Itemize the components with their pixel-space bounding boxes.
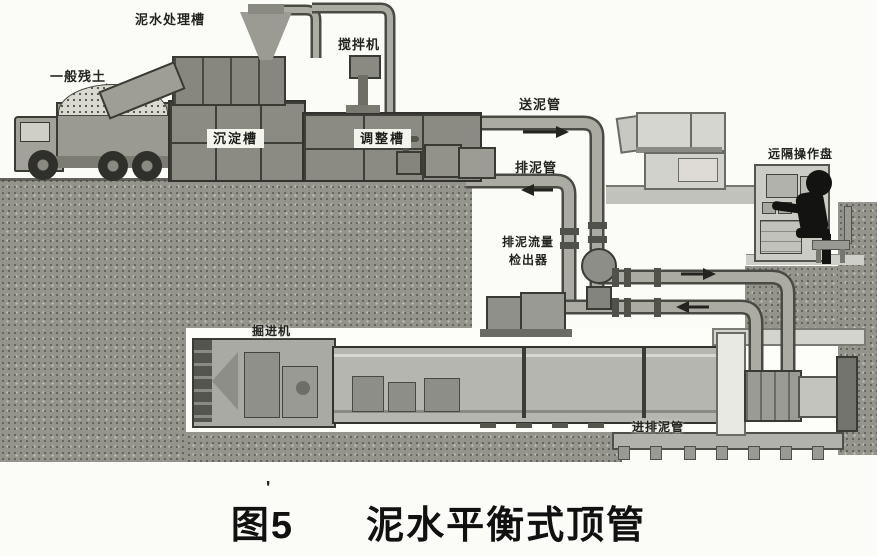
- feed-flow-arrow: [523, 126, 569, 138]
- label-pit-pipes: 进排泥管: [632, 421, 684, 433]
- discharge-flow-arrow: [521, 184, 553, 196]
- support-foot: [650, 446, 662, 460]
- earth-under-tunnel: [186, 428, 622, 462]
- label-slurry-treatment-tank: 泥水处理槽: [135, 13, 205, 26]
- support-foot: [684, 446, 696, 460]
- cyclone-funnel: [240, 12, 292, 60]
- pipe-flange: [612, 268, 619, 287]
- container-door: [678, 158, 718, 182]
- pipe-flange: [612, 298, 619, 317]
- label-flow-detector: 排泥流量: [502, 236, 554, 248]
- label-flow-detector: 检出器: [509, 254, 548, 266]
- switch-panel: [760, 220, 802, 254]
- support-foot: [748, 446, 760, 460]
- monitor-screen: [766, 174, 798, 198]
- chair-leg: [816, 249, 821, 263]
- truck-rear-wheel: [132, 151, 162, 181]
- pipe-joint: [522, 348, 526, 418]
- earth-surface-block: [0, 178, 472, 335]
- chair-back: [844, 206, 852, 244]
- sleeper: [480, 423, 496, 428]
- main-jack-unit: [744, 370, 802, 422]
- label-sedimentation-tank: 沉淀槽: [207, 129, 264, 148]
- trailing-gear-box: [424, 378, 460, 412]
- trailing-gear-box: [352, 376, 384, 412]
- pipe-flange: [560, 228, 579, 235]
- slurry-treatment-unit: [172, 56, 286, 106]
- gate-valve: [396, 151, 422, 175]
- figure-canvas: 一般残土 泥水处理槽 搅拌机 沉淀槽 调整槽 送泥管 排泥管 排泥流量 检出器 …: [0, 0, 877, 556]
- tbm-equipment-box: [244, 352, 280, 418]
- mixer-mount: [346, 105, 380, 113]
- feed-pump: [458, 147, 496, 179]
- pipe-flange: [588, 222, 607, 229]
- figure-caption: 图5泥水平衡式顶管: [0, 494, 877, 549]
- truck-rear-wheel: [98, 151, 128, 181]
- entrance-wall: [716, 332, 746, 436]
- bypass-valve: [586, 286, 612, 310]
- sleeper: [552, 423, 568, 428]
- support-foot: [618, 446, 630, 460]
- pipe-joint: [642, 348, 646, 418]
- tbm-motor-disc: [296, 381, 310, 395]
- sleeper: [588, 423, 604, 428]
- truck-window: [20, 122, 50, 142]
- pipe-flange: [654, 298, 661, 317]
- pipe-flange: [624, 298, 631, 317]
- pipe-flange: [560, 242, 579, 249]
- label-discharge-pipe: 排泥管: [515, 161, 557, 174]
- pit-pump: [520, 292, 566, 334]
- support-foot: [716, 446, 728, 460]
- label-machine: 掘进机: [252, 325, 291, 337]
- pipe-flange: [624, 268, 631, 287]
- pipe-flange: [588, 236, 607, 243]
- tbm-cutter-head: [194, 340, 212, 422]
- label-mixer: 搅拌机: [338, 38, 380, 51]
- pit-pump-motor: [486, 296, 524, 332]
- site-container: [636, 112, 726, 152]
- chair-leg: [840, 249, 845, 263]
- pit-pump-base: [480, 329, 572, 337]
- label-adjustment-tank: 调整槽: [354, 129, 411, 148]
- caption-title: 泥水平衡式顶管: [366, 505, 646, 547]
- earth-left-column: [0, 330, 188, 462]
- sleeper: [516, 423, 532, 428]
- thrust-collar: [836, 356, 858, 432]
- pipe-flange: [654, 268, 661, 287]
- label-soil: 一般残土: [50, 70, 106, 83]
- label-feed-pipe: 送泥管: [519, 98, 561, 111]
- pit-discharge-flow-arrow: [676, 301, 709, 313]
- support-foot: [812, 446, 824, 460]
- trailing-gear-box: [388, 382, 416, 412]
- support-foot: [780, 446, 792, 460]
- cyclone-cap: [248, 4, 284, 14]
- feed-pump-motor: [424, 144, 462, 178]
- truck-front-wheel: [28, 150, 58, 180]
- pit-feed-flow-arrow: [681, 268, 716, 280]
- caption-number: 图5: [231, 505, 294, 547]
- label-remote-panel: 远隔操作盘: [768, 148, 833, 160]
